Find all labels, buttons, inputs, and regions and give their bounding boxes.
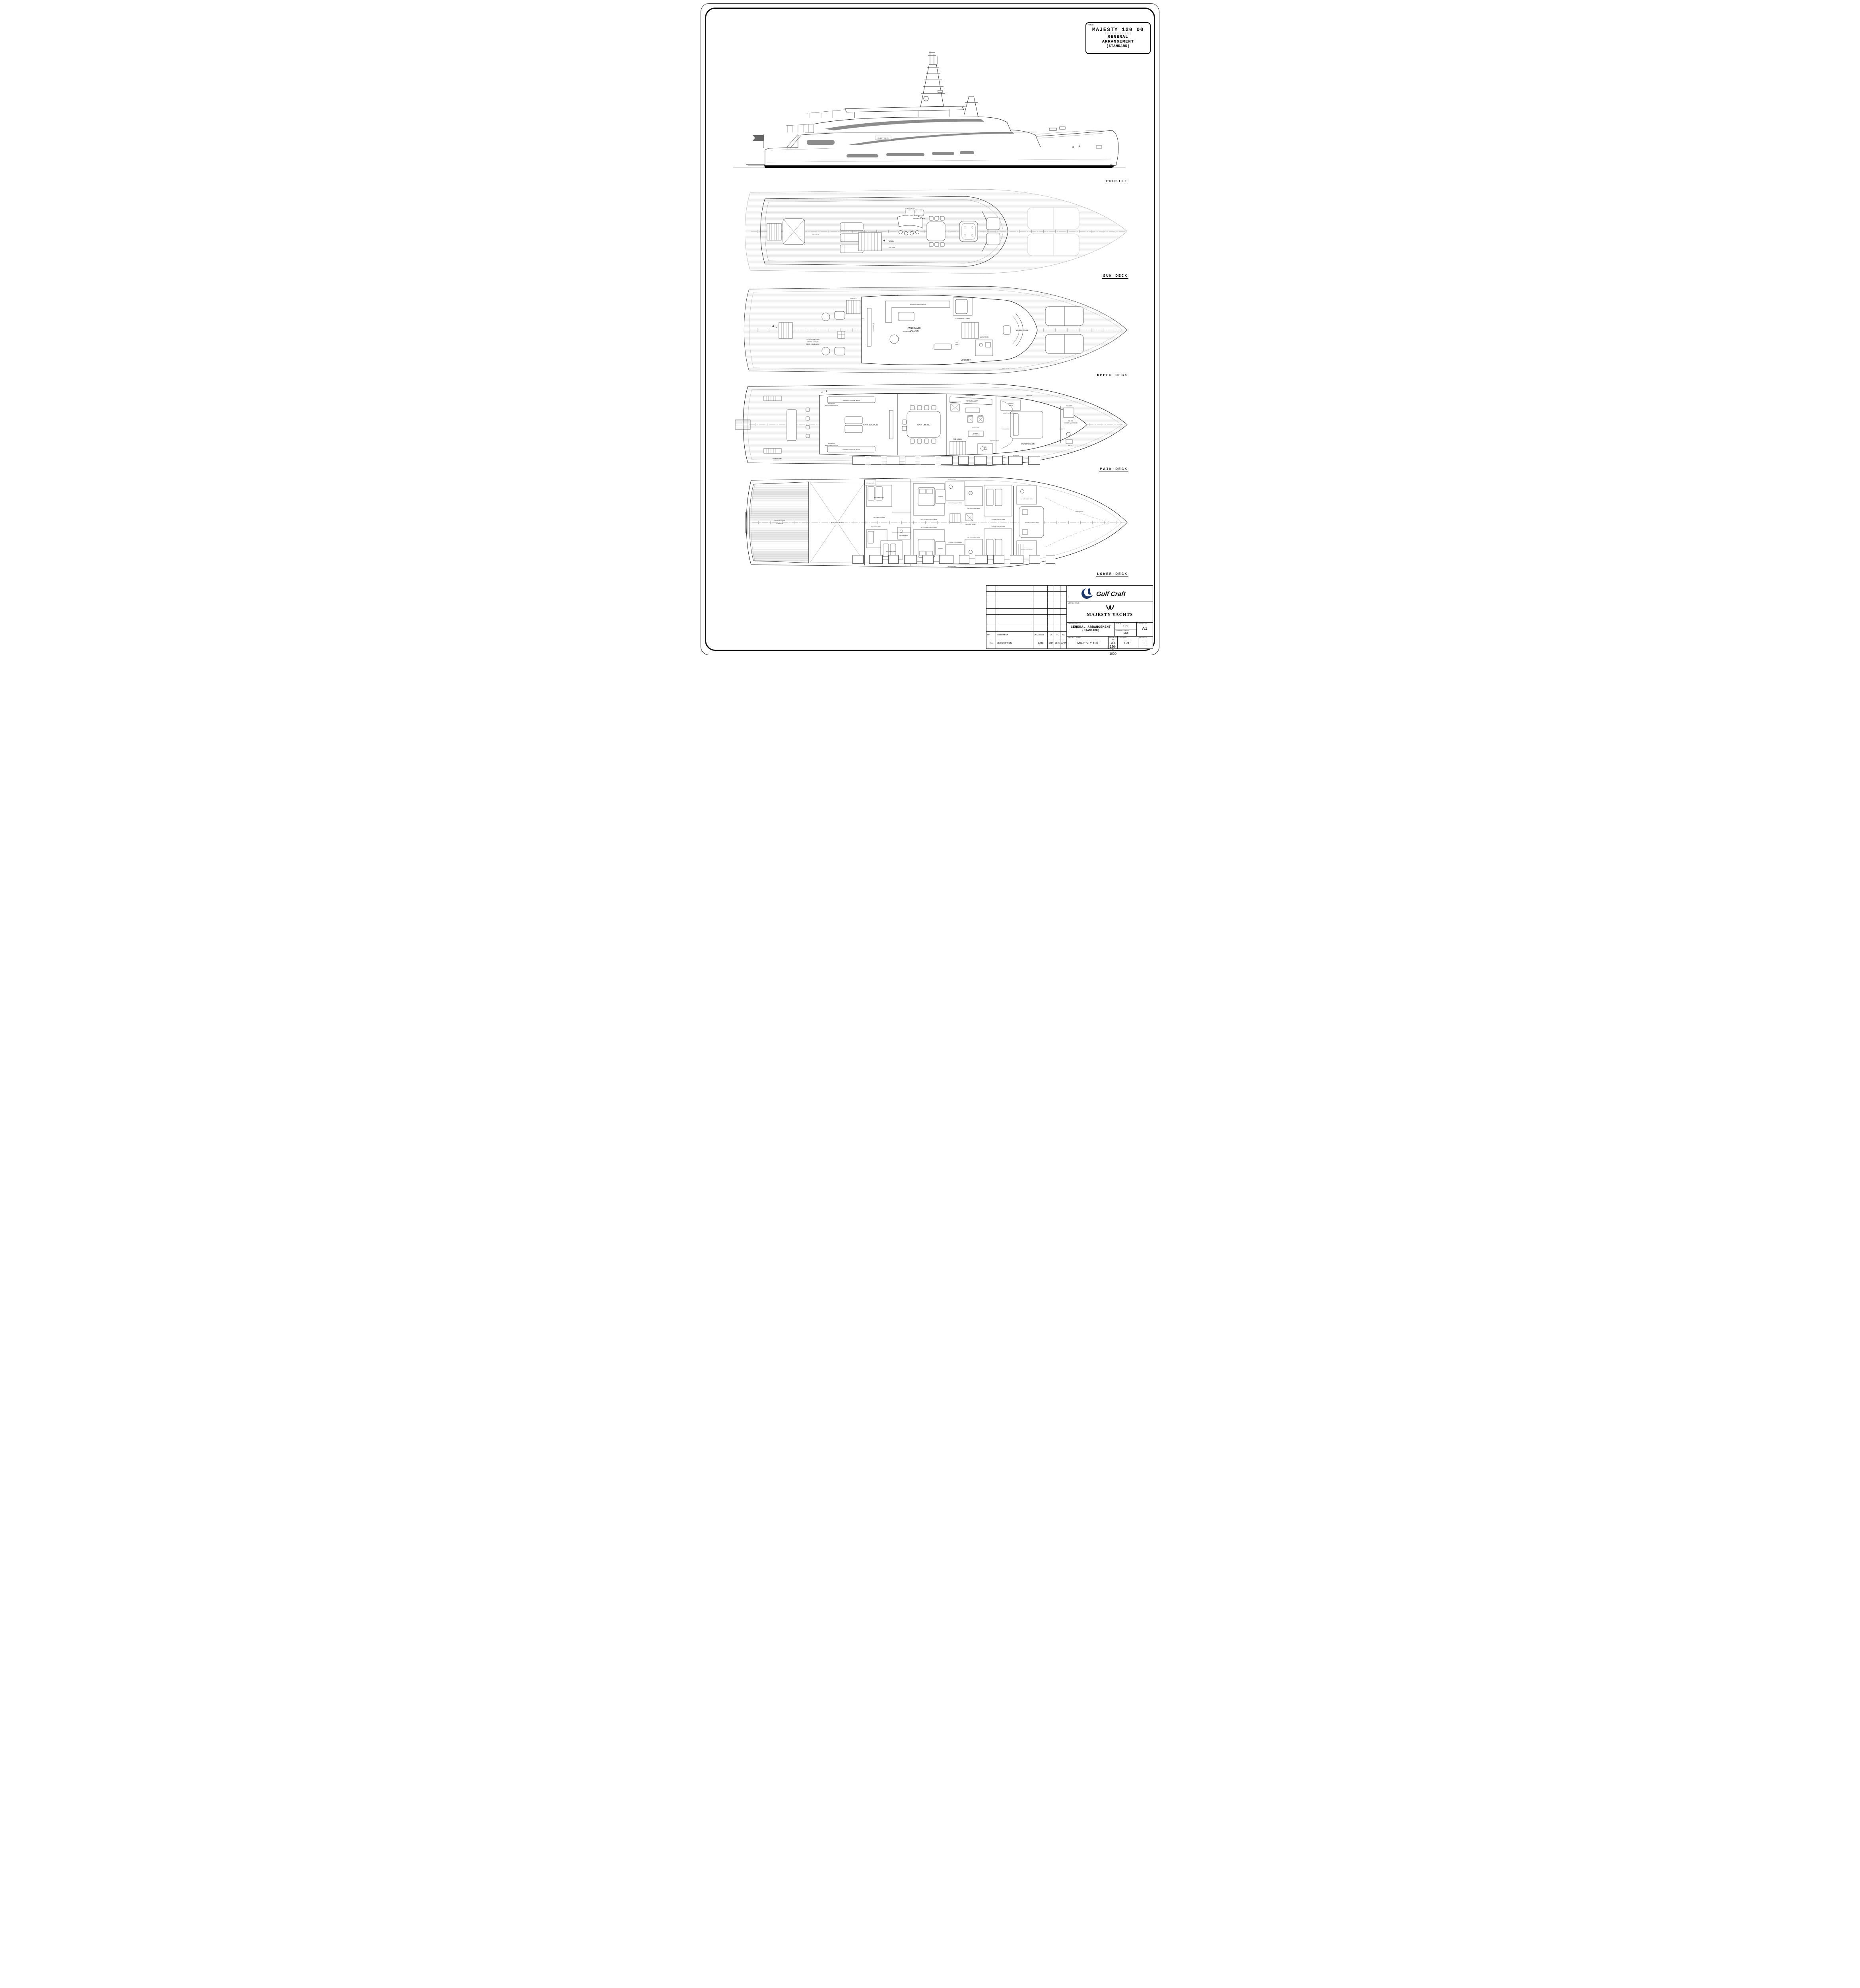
sun-down-label: DOWN bbox=[888, 241, 894, 243]
lower-deck-label: LOWER DECK bbox=[1096, 572, 1128, 577]
md-ice-maker: ICE MAKER BELOW bbox=[990, 440, 999, 441]
fwd-wic-119-label: 119 FWD GUEST WIC bbox=[1021, 549, 1032, 551]
profile-view: MAJESTY YACHTS W.L bbox=[727, 28, 1129, 183]
guest-lobby-label: 116 GUEST LOBBY bbox=[965, 524, 977, 525]
ud-day-head-2: HEAD bbox=[955, 344, 959, 346]
crew-lounge-label: 001 CREW LOUNGE bbox=[874, 516, 885, 518]
ud-tv-note: 55 INCH LED TV bbox=[872, 323, 874, 331]
title-block: 00 Standard GA 26/07/2021 GC GC GC No. D… bbox=[986, 585, 1153, 649]
rev-no: 00 bbox=[986, 632, 996, 638]
md-space-fuel-1: SPACE FOR FUEL & bbox=[773, 458, 782, 459]
md-sofa-note-top: SOFA WITH STORAGE BELOW bbox=[843, 400, 860, 401]
sheet-no-value: 1 of 1 bbox=[1118, 641, 1138, 645]
ud-dn-label: DN bbox=[862, 318, 864, 320]
drawing-no-label: DRAWING No. bbox=[1109, 637, 1117, 640]
sheet-size-value: A1 bbox=[1137, 626, 1153, 631]
revision-cell: REVISION 0 bbox=[1138, 637, 1153, 648]
upper-deck-label: UPPER DECK bbox=[1096, 373, 1128, 378]
drawing-title: GENERAL ARRANGEMENT bbox=[1067, 625, 1114, 629]
cabin-108-label: 108 DOUBLE GUEST CABIN bbox=[920, 519, 937, 520]
rev-apprd: GC bbox=[1060, 632, 1067, 638]
sun-deck-plan: DOWN KIDS GATE KIDS GATE ICE MAKER BELOW… bbox=[727, 187, 1129, 276]
drawing-title-cell: DRAWING TITLE: GENERAL ARRANGEMENT (STAN… bbox=[1067, 623, 1115, 636]
vessel-title-cell: VESSEL TITLE: MAJESTY YACHTS bbox=[1067, 602, 1153, 622]
fwd-cabin-117-label: 117 FWD GUEST CABIN bbox=[1025, 522, 1039, 524]
sun-refrigerator: REFRIGERATOR BELOW bbox=[913, 217, 926, 219]
rev-empty-row bbox=[986, 591, 1067, 597]
wheel-house-label: WHEEL HOUSE bbox=[1016, 329, 1029, 331]
sheet-size-cell: SHEET SIZE A1 bbox=[1137, 623, 1153, 636]
rev-drn: GC bbox=[1048, 632, 1054, 638]
stern-flag bbox=[753, 134, 764, 148]
sheet-no-cell: SHEET No. 1 of 1 bbox=[1118, 637, 1138, 648]
rev-empty-row bbox=[986, 620, 1067, 626]
window-schedule-row-1 bbox=[852, 456, 1040, 465]
ud-kids-gate-1: KIDS GATE bbox=[850, 297, 856, 299]
project-name-label: PROJECT NAME: bbox=[1068, 637, 1081, 639]
majesty-trident-icon bbox=[1106, 604, 1114, 611]
sun-deck-label: SUN DECK bbox=[1102, 274, 1128, 279]
pantry-label-2: AREA bbox=[1009, 405, 1013, 406]
md-storage-shelves-2: WITH SHELVES bbox=[972, 434, 979, 436]
owners-cabin-label: OWNER'S CABIN bbox=[1021, 443, 1035, 445]
ud-storage-note: STORAGE WITH DRAWERS BELOW bbox=[881, 295, 899, 297]
ld-floor-line-label: LD FLOOR LINE bbox=[1076, 511, 1083, 513]
drawing-title-label: DRAWING TITLE: bbox=[1068, 623, 1081, 625]
sun-kids-gate-1: KIDS GATE bbox=[812, 233, 819, 235]
ud-up-label: UP bbox=[775, 326, 777, 328]
md-storage-shelves-1: STORAGE bbox=[973, 433, 979, 434]
pantry-label-1: PANTRY bbox=[1008, 403, 1014, 404]
md-dishwasher: DISHWASHER BELOW bbox=[966, 395, 976, 396]
drawing-sheet: TITLE: MAJESTY 120 00 ---------------- G… bbox=[697, 0, 1163, 658]
md-engine-vent-bot-2: ENGINE VENTILATION bbox=[825, 445, 838, 446]
ud-bathroom-label: BATHROOM bbox=[980, 336, 989, 338]
md-day-head-2: HEAD bbox=[984, 448, 988, 450]
md-kids-gate: KIDS GATE bbox=[1027, 395, 1033, 396]
rev-hdr-apprd: APPRD bbox=[1060, 638, 1067, 649]
rev-hdr-chkd: CHKD bbox=[1054, 638, 1060, 649]
md-fridge: FRIDGE-FREEZER COMBI bbox=[949, 402, 961, 403]
md-washer: 2 WASHER bbox=[967, 415, 973, 416]
upper-deck-plan: PANORAMIC SALOON CAPTAIN'S CABIN BATHROO… bbox=[727, 284, 1129, 376]
ud-day-head-1: DAY bbox=[956, 342, 959, 344]
rev-date: 26/07/2021 bbox=[1033, 632, 1048, 638]
bath-111-label: 111 DOUBLE GUEST BATH bbox=[948, 542, 962, 544]
rev-empty-row bbox=[986, 586, 1067, 592]
rev-description: Standard GA bbox=[996, 632, 1033, 638]
drawing-title-row: DRAWING TITLE: GENERAL ARRANGEMENT (STAN… bbox=[1067, 623, 1153, 637]
bath-113-label: 113 TWIN GUEST BATH bbox=[967, 508, 980, 509]
revision-row: 00 Standard GA 26/07/2021 GC GC GC bbox=[986, 632, 1067, 638]
crew-cabin-002-label: 002 CREW CABIN bbox=[871, 526, 881, 528]
cabin-112-label: 112 TWIN GUEST CABIN bbox=[991, 519, 1006, 520]
drawing-no-cell: DRAWING No. GCI-120-00-1000 bbox=[1109, 637, 1118, 648]
scale-units-cell: SCALE 1:75 DRAWING UNITS MM bbox=[1115, 623, 1137, 636]
rev-hdr-date: DATE bbox=[1033, 638, 1048, 649]
sun-kids-gate-2: KIDS GATE bbox=[889, 247, 895, 248]
main-saloon-label: MAIN SALOON bbox=[863, 424, 878, 426]
sheet-no-label: SHEET No. bbox=[1118, 637, 1127, 639]
revision-label: REVISION bbox=[1139, 637, 1147, 639]
owner-bath-1: MD 206 bbox=[1068, 420, 1073, 422]
rev-hdr-drn: DRN bbox=[1048, 638, 1054, 649]
ld-pipes-bottom: SPACE FOR PIPES bbox=[947, 566, 956, 567]
gulf-craft-logo-graphic: Gulf Craft bbox=[1080, 587, 1140, 600]
revision-header-row: No. DESCRIPTION DATE DRN CHKD APPRD bbox=[986, 638, 1067, 649]
bath-115-label: 115 TWIN GUEST BATH bbox=[967, 536, 980, 538]
profile-view-label: PROFILE bbox=[1105, 179, 1128, 184]
md-sofa-note-bottom: SOFA WITH STORAGE BELOW bbox=[843, 449, 860, 450]
gulf-craft-logo: Gulf Craft bbox=[1067, 586, 1153, 602]
panoramic-saloon-1: PANORAMIC bbox=[908, 327, 921, 330]
ud-kids-gate-2: KIDS GATE bbox=[1002, 367, 1009, 369]
sun-ice-maker: ICE MAKER BELOW bbox=[905, 208, 915, 210]
bath-109-label: 109 DOUBLE GUEST BATH bbox=[948, 502, 963, 504]
ud-book-matched: BOOK MATCHED bbox=[903, 331, 911, 332]
captains-cabin-label: CAPTAIN'S CABIN bbox=[955, 318, 969, 320]
md-shower-label: SHOWER bbox=[1066, 405, 1072, 407]
crew-bath-005-label: 005 CREW BATH bbox=[899, 535, 908, 536]
rev-chkd: GC bbox=[1054, 632, 1060, 638]
gulf-craft-wordmark: Gulf Craft bbox=[1096, 590, 1126, 598]
profile-hull bbox=[733, 51, 1126, 168]
md-sink-note: SINK WITH WASTE BIN BELOW bbox=[1003, 413, 1017, 414]
loose-furniture-note-3: BEACH CLUB ALSO bbox=[806, 344, 819, 345]
scale-value: 1:75 bbox=[1115, 625, 1136, 628]
cabin-114-label: 114 TWIN GUEST CABIN bbox=[991, 526, 1006, 528]
upper-deck-view: PANORAMIC SALOON CAPTAIN'S CABIN BATHROO… bbox=[727, 284, 1129, 376]
md-engine-vent-top-1: SPACE FOR bbox=[828, 403, 835, 404]
md-vinyl-floor: VINYL FLOOR bbox=[972, 427, 979, 429]
crew-cabin-004-label: 004 CREW CABIN bbox=[886, 551, 896, 552]
rev-empty-row bbox=[986, 614, 1067, 620]
main-deck-view: MAIN SALOON MAIN DINING MAIN GALLEY PANT… bbox=[727, 382, 1129, 467]
md-toilet-label: TOILET bbox=[1068, 445, 1072, 447]
crew-cabin-006-label: 006 CREW CABIN bbox=[874, 497, 884, 498]
waterline-label: W.L bbox=[1110, 164, 1114, 167]
vessel-title-label: VESSEL TITLE: bbox=[1068, 602, 1080, 604]
crew-bath-007-label: 007 CREW BATH bbox=[866, 482, 875, 484]
units-label: DRAWING UNITS bbox=[1116, 630, 1129, 631]
aft-railing bbox=[786, 124, 813, 132]
rev-empty-row bbox=[986, 626, 1067, 632]
sheet-size-label: SHEET SIZE bbox=[1138, 623, 1147, 625]
rev-empty-row bbox=[986, 609, 1067, 615]
ld-shower-1: SHOWER bbox=[938, 496, 943, 497]
mast bbox=[920, 51, 945, 107]
sun-deck-view: DOWN KIDS GATE KIDS GATE ICE MAKER BELOW… bbox=[727, 187, 1129, 276]
loose-furniture-note-2: CAN BE USED IN bbox=[807, 341, 819, 343]
owner-bath-2: OWNER BATHROOM bbox=[1064, 422, 1077, 424]
engine-room-label: ENGINE ROOM bbox=[831, 522, 845, 524]
units-value: MM bbox=[1115, 632, 1136, 635]
rev-hdr-description: DESCRIPTION bbox=[996, 638, 1033, 649]
project-name-value: MAJESTY 120 bbox=[1067, 641, 1108, 645]
beach-club-label-2: GARAGE bbox=[776, 522, 783, 524]
drawing-no-value: GCI-120-00-1000 bbox=[1109, 641, 1117, 656]
main-galley-label: MAIN GALLEY bbox=[967, 400, 978, 402]
main-deck-label: MAIN DECK bbox=[1099, 467, 1128, 472]
ud-sofa-note: SOFA WITH STORAGE BELOW bbox=[910, 304, 926, 305]
cabin-110-label: 110 DOUBLE GUEST CABIN bbox=[920, 527, 937, 528]
md-up-label: UP bbox=[821, 392, 823, 393]
ud-lobby-label: UD LOBBY bbox=[961, 359, 971, 361]
hull-brand-text: MAJESTY YACHTS bbox=[878, 138, 889, 139]
beach-club-label-1: BEACH CLUB/ bbox=[775, 519, 786, 521]
scale-cell: SCALE 1:75 bbox=[1115, 623, 1136, 630]
rev-hdr-no: No. bbox=[986, 638, 996, 649]
title-field-label: TITLE: bbox=[1088, 24, 1094, 26]
brand-name: MAJESTY YACHTS bbox=[1067, 612, 1153, 617]
window-schedule-row-2 bbox=[852, 555, 1055, 564]
md-storage-above: STORAGE ABOVE bbox=[1002, 429, 1010, 430]
rev-empty-row bbox=[986, 603, 1067, 609]
fwd-bath-118-label: 118 FWD GUEST BATH bbox=[1021, 498, 1033, 500]
revision-table: 00 Standard GA 26/07/2021 GC GC GC No. D… bbox=[986, 585, 1067, 649]
scale-label: SCALE bbox=[1116, 623, 1121, 625]
ld-pipes-top: SPACE FOR PIPES bbox=[947, 479, 956, 480]
units-cell: DRAWING UNITS MM bbox=[1115, 629, 1136, 636]
md-engine-vent-bot-1: SPACE FOR bbox=[828, 443, 835, 444]
ld-shower-2: SHOWER bbox=[938, 547, 943, 549]
md-mirror-tv: MIRROR TV bbox=[1059, 429, 1065, 430]
md-space-fuel-2: WATER STATION bbox=[773, 459, 782, 461]
main-dining-label: MAIN DINING bbox=[917, 424, 931, 426]
md-day-head-1: DAY bbox=[984, 447, 987, 448]
project-name-cell: PROJECT NAME: MAJESTY 120 bbox=[1067, 637, 1109, 648]
loose-furniture-note-1: LOOSE FURNITURE bbox=[806, 339, 820, 340]
title-block-right: Gulf Craft VESSEL TITLE: MAJESTY YACHTS … bbox=[1067, 585, 1153, 649]
main-deck-plan: MAIN SALOON MAIN DINING MAIN GALLEY PANT… bbox=[727, 382, 1129, 467]
project-row: PROJECT NAME: MAJESTY 120 DRAWING No. GC… bbox=[1067, 637, 1153, 648]
drawing-subtitle: (STANDARD) bbox=[1067, 629, 1114, 632]
md-engine-vent-top-2: ENGINE VENTILATION bbox=[825, 405, 838, 406]
md-dryer: 2 DRYER bbox=[978, 415, 982, 416]
revision-value: 0 bbox=[1138, 641, 1153, 645]
profile-drawing: MAJESTY YACHTS W.L bbox=[727, 28, 1129, 183]
rev-empty-row bbox=[986, 597, 1067, 603]
md-lobby-label: MD LOBBY bbox=[953, 438, 962, 440]
